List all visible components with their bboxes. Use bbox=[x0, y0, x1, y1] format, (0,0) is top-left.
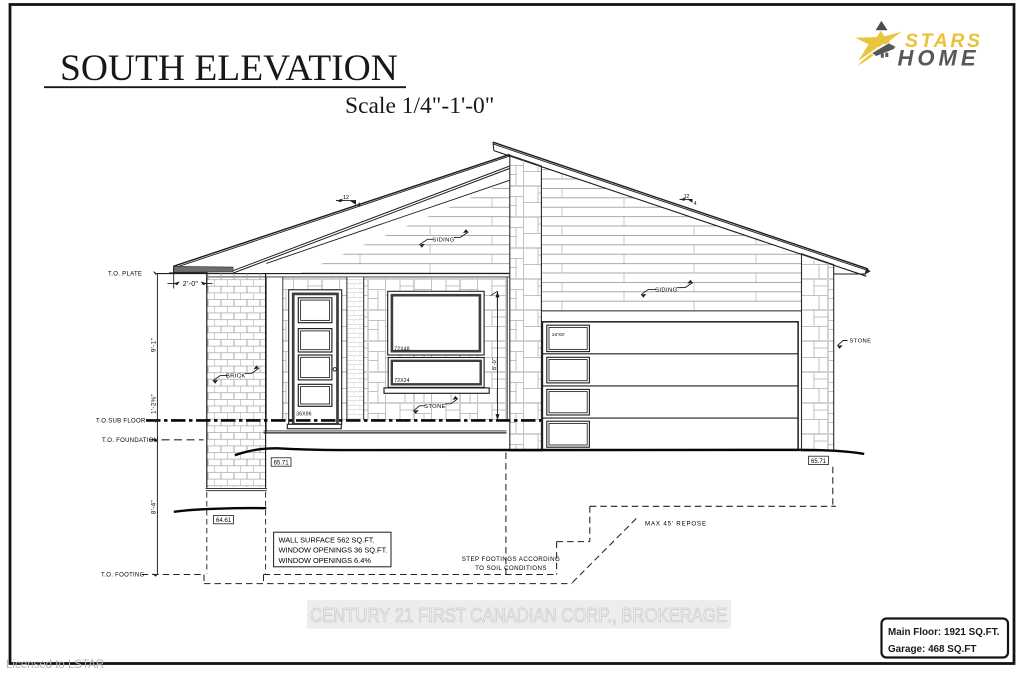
svg-text:STONE: STONE bbox=[424, 404, 446, 410]
svg-text:64.61: 64.61 bbox=[216, 518, 232, 524]
svg-text:SIDING: SIDING bbox=[655, 288, 677, 294]
svg-text:9'-1": 9'-1" bbox=[151, 338, 158, 352]
svg-text:STEP FOOTINGS ACCORDING: STEP FOOTINGS ACCORDING bbox=[462, 556, 560, 563]
svg-text:72X48: 72X48 bbox=[394, 346, 409, 352]
svg-text:WINDOW OPENINGS 36 SQ.FT.: WINDOW OPENINGS 36 SQ.FT. bbox=[279, 546, 388, 555]
svg-text:16'X8': 16'X8' bbox=[552, 332, 565, 337]
svg-text:WINDOW OPENINGS 6.4%: WINDOW OPENINGS 6.4% bbox=[279, 556, 372, 565]
svg-text:65.71: 65.71 bbox=[274, 460, 290, 466]
svg-text:Licensed to LSTAR: Licensed to LSTAR bbox=[6, 659, 104, 671]
svg-text:8'-4": 8'-4" bbox=[151, 500, 158, 514]
svg-text:BRICK: BRICK bbox=[226, 373, 246, 379]
svg-text:Garage: 468 SQ.FT: Garage: 468 SQ.FT bbox=[888, 644, 976, 655]
svg-text:SIDING: SIDING bbox=[432, 237, 454, 243]
svg-text:T.O. PLATE: T.O. PLATE bbox=[108, 272, 142, 278]
svg-text:HOME: HOME bbox=[898, 46, 980, 71]
svg-text:Scale 1/4"-1'-0": Scale 1/4"-1'-0" bbox=[345, 93, 494, 119]
svg-text:2'-0": 2'-0" bbox=[183, 281, 199, 288]
svg-text:36X96: 36X96 bbox=[296, 412, 311, 418]
svg-text:4: 4 bbox=[694, 201, 697, 207]
svg-text:T.O. FOUNDATION: T.O. FOUNDATION bbox=[102, 438, 158, 444]
svg-text:8'-0": 8'-0" bbox=[492, 358, 498, 370]
svg-text:12: 12 bbox=[684, 194, 690, 200]
svg-text:65.71: 65.71 bbox=[811, 459, 827, 465]
svg-text:Main Floor: 1921 SQ.FT.: Main Floor: 1921 SQ.FT. bbox=[888, 627, 1000, 638]
svg-text:SOUTH ELEVATION: SOUTH ELEVATION bbox=[60, 48, 398, 89]
svg-text:STONE: STONE bbox=[850, 339, 872, 345]
svg-text:72X24: 72X24 bbox=[394, 378, 409, 384]
svg-text:4: 4 bbox=[357, 203, 360, 209]
svg-text:TO SOIL CONDITIONS: TO SOIL CONDITIONS bbox=[475, 565, 547, 572]
svg-text:MAX 45' REPOSE: MAX 45' REPOSE bbox=[645, 521, 707, 528]
svg-text:12: 12 bbox=[343, 195, 349, 201]
svg-text:T.O. FOOTING: T.O. FOOTING bbox=[101, 573, 145, 579]
svg-text:1'-2⅝": 1'-2⅝" bbox=[151, 394, 158, 414]
svg-text:WALL SURFACE 562 SQ.FT.: WALL SURFACE 562 SQ.FT. bbox=[279, 535, 375, 544]
svg-text:T.O.SUB FLOOR: T.O.SUB FLOOR bbox=[96, 419, 146, 425]
svg-text:CENTURY 21 FIRST CANADIAN CORP: CENTURY 21 FIRST CANADIAN CORP., BROKERA… bbox=[310, 605, 727, 627]
